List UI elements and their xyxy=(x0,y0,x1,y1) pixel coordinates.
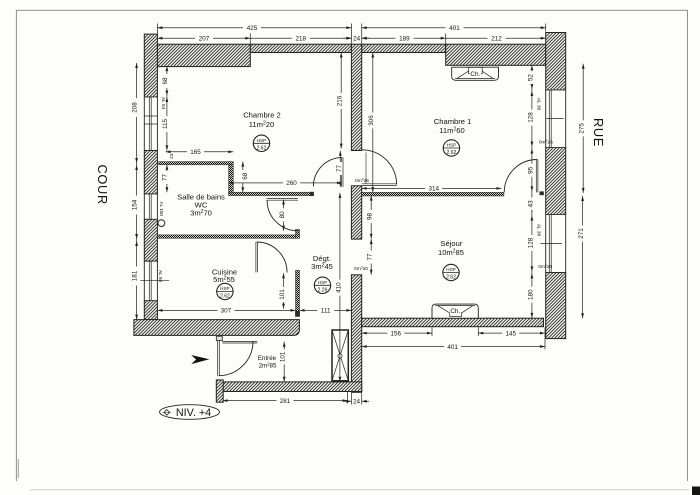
svg-text:218: 218 xyxy=(296,36,307,43)
svg-text:AL 150: AL 150 xyxy=(159,202,164,217)
svg-text:2.62: 2.62 xyxy=(220,294,230,300)
svg-text:275: 275 xyxy=(579,123,586,134)
svg-text:HSP: HSP xyxy=(257,138,266,143)
svg-text:281: 281 xyxy=(280,398,291,405)
svg-text:RUE: RUE xyxy=(591,118,606,147)
svg-text:77: 77 xyxy=(336,165,343,173)
svg-text:Chambre 2: Chambre 2 xyxy=(243,111,281,120)
svg-text:43: 43 xyxy=(527,200,534,208)
svg-text:68: 68 xyxy=(162,77,169,85)
svg-text:401: 401 xyxy=(447,344,458,351)
svg-text:NIV. +4: NIV. +4 xyxy=(176,407,211,419)
svg-text:HSP: HSP xyxy=(446,267,455,272)
svg-text:Chambre 1: Chambre 1 xyxy=(434,117,472,126)
svg-text:HSP: HSP xyxy=(447,143,456,148)
svg-text:2.62: 2.62 xyxy=(446,275,456,281)
svg-text:10m285: 10m285 xyxy=(438,248,464,257)
svg-text:212: 212 xyxy=(491,36,502,43)
svg-text:80: 80 xyxy=(279,211,286,219)
svg-text:306: 306 xyxy=(368,115,375,126)
svg-text:AL 38: AL 38 xyxy=(535,224,541,237)
svg-text:77: 77 xyxy=(162,174,169,182)
svg-text:2.62: 2.62 xyxy=(257,145,267,151)
svg-text:23: 23 xyxy=(169,153,175,159)
svg-text:207: 207 xyxy=(199,36,210,43)
svg-text:52: 52 xyxy=(527,74,534,82)
svg-text:128: 128 xyxy=(527,112,534,123)
svg-text:101: 101 xyxy=(280,351,287,362)
svg-text:24: 24 xyxy=(353,35,361,42)
svg-text:98: 98 xyxy=(367,213,374,221)
svg-text:2.26: 2.26 xyxy=(318,287,328,293)
svg-text:181: 181 xyxy=(131,270,138,281)
svg-text:AL 54: AL 54 xyxy=(160,97,166,110)
svg-text:77: 77 xyxy=(367,253,374,261)
svg-text:11m260: 11m260 xyxy=(439,126,464,135)
svg-text:111: 111 xyxy=(321,308,331,315)
svg-text:HSP: HSP xyxy=(318,280,327,285)
svg-text:Séjour: Séjour xyxy=(440,239,462,248)
svg-text:401: 401 xyxy=(449,25,460,32)
svg-text:11m220: 11m220 xyxy=(249,120,274,129)
svg-text:208: 208 xyxy=(131,102,138,113)
svg-text:156: 156 xyxy=(391,330,402,337)
svg-text:128: 128 xyxy=(527,237,534,248)
svg-text:189: 189 xyxy=(399,36,410,43)
svg-text:24: 24 xyxy=(353,399,361,406)
svg-text:180: 180 xyxy=(527,289,534,300)
svg-text:AL 93: AL 93 xyxy=(157,270,163,283)
svg-text:216: 216 xyxy=(337,95,344,106)
svg-text:AL 38: AL 38 xyxy=(535,98,541,111)
svg-text:271: 271 xyxy=(578,228,585,239)
svg-text:68: 68 xyxy=(242,172,249,180)
svg-text:260: 260 xyxy=(286,180,297,187)
svg-text:425: 425 xyxy=(247,25,258,32)
svg-text:Ch.: Ch. xyxy=(470,71,480,78)
svg-text:COUR: COUR xyxy=(95,164,110,204)
svg-text:307: 307 xyxy=(221,308,232,315)
svg-text:165: 165 xyxy=(190,149,201,156)
svg-text:410: 410 xyxy=(335,282,342,293)
svg-text:314: 314 xyxy=(428,186,439,193)
svg-text:154: 154 xyxy=(131,199,138,210)
svg-text:95: 95 xyxy=(527,166,534,174)
svg-text:HSP: HSP xyxy=(220,286,229,291)
svg-text:145: 145 xyxy=(505,330,516,337)
svg-text:101: 101 xyxy=(279,289,286,300)
svg-text:115: 115 xyxy=(162,118,169,129)
svg-text:2.62: 2.62 xyxy=(447,150,457,156)
svg-text:Ch.: Ch. xyxy=(450,308,460,315)
